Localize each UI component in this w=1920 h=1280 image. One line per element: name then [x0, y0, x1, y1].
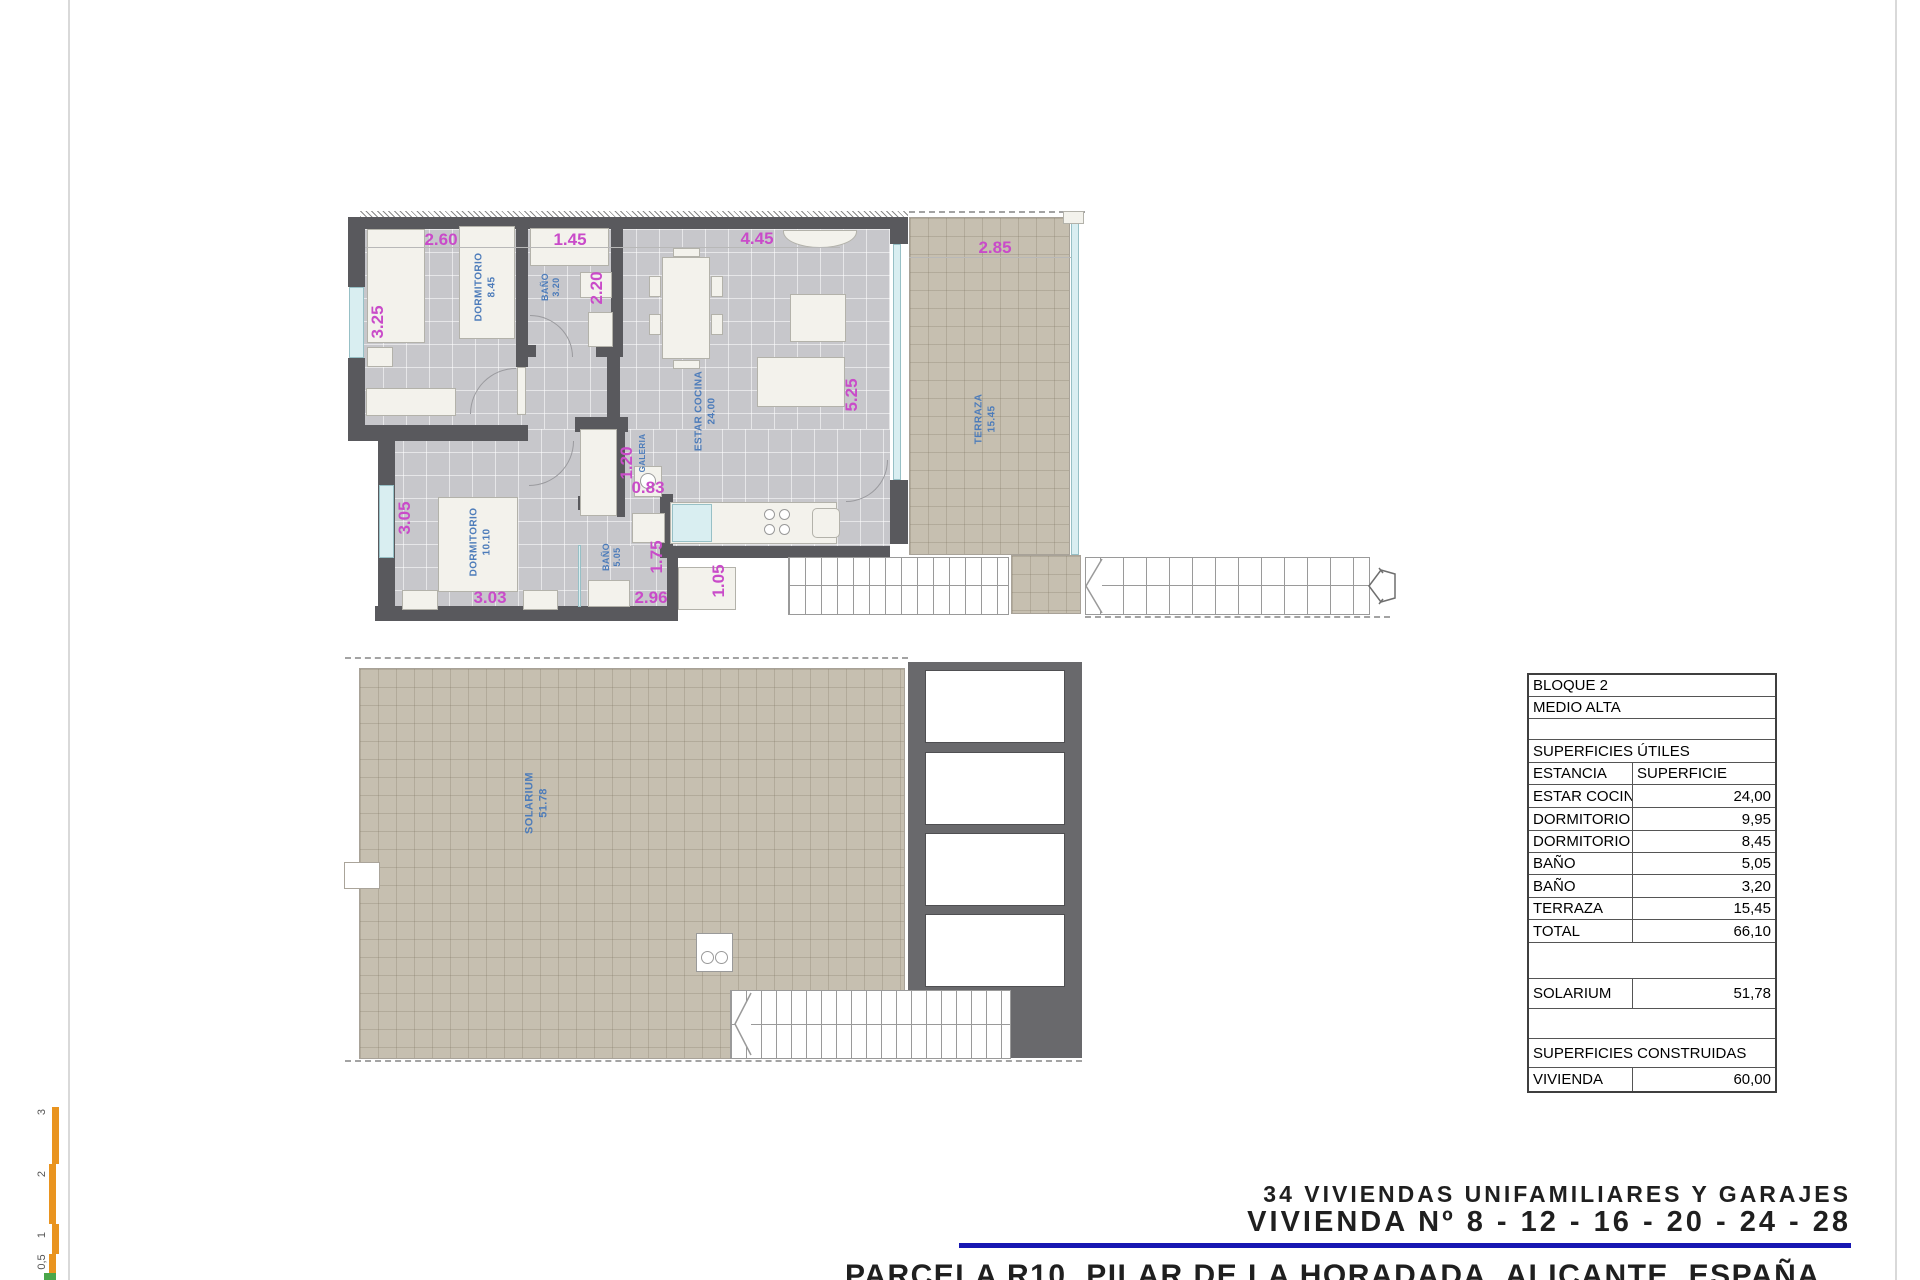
stairwell-opening	[925, 670, 1065, 743]
room-name: DORMITORIO	[474, 253, 487, 322]
dining-chair	[711, 276, 723, 297]
table-row: DORMITORIO9,95	[1529, 808, 1775, 831]
table-cell: SOLARIUM	[1529, 979, 1633, 1008]
dimension-text: 1.75	[647, 540, 667, 573]
furniture-wardrobe	[580, 429, 617, 516]
dining-chair	[711, 314, 723, 335]
table-cell: 24,00	[1633, 788, 1775, 805]
wall	[890, 480, 908, 544]
glazed-facade	[893, 244, 901, 480]
dimension-text: 2.60	[424, 230, 457, 250]
stair-break-mark	[731, 991, 753, 1058]
table-cell: VIVIENDA	[1529, 1068, 1633, 1091]
table-cell: BLOQUE 2	[1529, 677, 1775, 694]
table-row: ESTANCIASUPERFICIE	[1529, 763, 1775, 785]
vent-circle	[715, 951, 728, 964]
room-name: ESTAR COCINA	[694, 371, 707, 451]
bathroom-sink	[632, 513, 665, 543]
kitchen-door	[672, 504, 712, 542]
furniture-dresser	[402, 590, 438, 610]
scale-label: 1	[36, 1232, 48, 1238]
room-label-terraza: TERRAZA 15.45	[974, 394, 999, 445]
room-label-estar-cocina: ESTAR COCINA 24.00	[694, 371, 719, 451]
scale-bar-segment	[49, 1164, 56, 1224]
room-area: 51.78	[537, 788, 551, 818]
table-cell: 15,45	[1633, 900, 1775, 917]
table-cell: 5,05	[1633, 855, 1775, 872]
scale-label: 0,5	[36, 1254, 48, 1269]
dimension-text: 3.25	[368, 305, 388, 338]
dimension-text: 2.20	[587, 271, 607, 304]
room-area: 8.45	[486, 276, 499, 297]
dimension-text: 2.85	[978, 238, 1011, 258]
room-name: BAÑO	[540, 273, 551, 301]
room-label-dormitorio-1: DORMITORIO 8.45	[474, 253, 499, 322]
window	[379, 485, 394, 558]
furniture-desk	[366, 388, 456, 416]
room-label-bano-2: BAÑO 5.05	[601, 543, 624, 571]
room-label-dormitorio-2: DORMITORIO 10.10	[469, 508, 494, 577]
room-area: 24.00	[706, 397, 719, 424]
dimension-text: 1.20	[617, 446, 637, 479]
dimension-text: 3.03	[473, 588, 506, 608]
room-area: 10.10	[481, 528, 494, 555]
toilet	[588, 580, 630, 607]
table-cell: DORMITORIO	[1529, 808, 1633, 830]
dining-chair	[673, 248, 700, 257]
stairs	[788, 557, 1009, 615]
table-row: ESTAR COCINA24,00	[1529, 785, 1775, 808]
wall	[348, 217, 365, 287]
terrace-tiles	[1011, 555, 1081, 614]
table-cell: TERRAZA	[1529, 898, 1633, 919]
apartment-floor-plan: DORMITORIO 8.45 BAÑO 3.20 ESTAR COCINA 2…	[0, 0, 1920, 660]
table-cell: 8,45	[1633, 833, 1775, 850]
stairwell-opening	[925, 833, 1065, 906]
room-name: GALERIA	[638, 434, 648, 473]
table-row	[1529, 943, 1775, 979]
boundary-dashed	[909, 211, 1085, 213]
scale-label: 2	[36, 1171, 48, 1177]
table-row: SUPERFICIES ÚTILES	[1529, 740, 1775, 763]
pillar	[1063, 211, 1084, 224]
dining-chair	[673, 360, 700, 369]
room-label-solarium: SOLARIUM 51.78	[523, 772, 551, 834]
scale-bar-segment	[52, 1224, 59, 1254]
scale-bar-origin	[44, 1273, 56, 1280]
stairwell-opening	[925, 914, 1065, 987]
stairwell-opening	[925, 752, 1065, 825]
title-underline	[959, 1243, 1851, 1248]
dimension-text: 2.96	[634, 588, 667, 608]
room-area: 15.45	[986, 405, 999, 432]
table-cell: 51,78	[1633, 985, 1775, 1002]
solarium-notch	[344, 862, 380, 889]
drawing-sheet: DORMITORIO 8.45 BAÑO 3.20 ESTAR COCINA 2…	[0, 0, 1920, 1280]
scale-bar-segment	[52, 1107, 59, 1164]
room-name: DORMITORIO	[469, 508, 482, 577]
room-name: TERRAZA	[974, 394, 987, 445]
surface-summary-table: BLOQUE 2 MEDIO ALTA SUPERFICIES ÚTILES E…	[1527, 673, 1777, 1093]
wall	[348, 358, 365, 425]
wall	[890, 219, 908, 244]
stair-midline	[788, 585, 1009, 586]
table-cell: SUPERFICIE	[1633, 765, 1775, 782]
furniture-nightstand	[367, 347, 393, 367]
dimension-text: 0.83	[631, 478, 664, 498]
hob-burner	[779, 524, 790, 535]
room-name: BAÑO	[601, 543, 612, 571]
table-cell: ESTAR COCINA	[1529, 785, 1633, 807]
room-label-galeria: GALERIA	[638, 434, 648, 473]
table-row: VIVIENDA60,00	[1529, 1068, 1775, 1091]
table-cell: DORMITORIO	[1529, 831, 1633, 852]
table-cell: ESTANCIA	[1529, 763, 1633, 784]
terrace-glass-rail	[1071, 217, 1079, 555]
table-cell: SUPERFICIES ÚTILES	[1529, 743, 1775, 760]
direction-arrow	[1366, 566, 1400, 606]
room-label-bano-1: BAÑO 3.20	[540, 273, 563, 301]
boundary-dashed	[345, 1060, 1082, 1062]
door-leaf	[517, 367, 526, 415]
dining-table	[662, 257, 710, 359]
dimension-text: 5.25	[842, 378, 862, 411]
furniture-table	[757, 357, 845, 407]
stair-break-mark	[1082, 557, 1104, 615]
dining-chair	[649, 314, 661, 335]
dining-chair	[649, 276, 661, 297]
stair-midline	[1085, 585, 1370, 586]
hob-burner	[764, 509, 775, 520]
table-row: MEDIO ALTA	[1529, 697, 1775, 719]
dimension-text: 1.45	[553, 230, 586, 250]
table-cell: 60,00	[1633, 1071, 1775, 1088]
furniture-dresser	[523, 590, 558, 610]
terrace-tiles	[909, 217, 1070, 555]
table-cell: TOTAL	[1529, 920, 1633, 942]
vent-circle	[701, 951, 714, 964]
dimension-text: 1.05	[709, 564, 729, 597]
toilet	[588, 312, 613, 347]
stair-treads	[1100, 557, 1368, 615]
table-cell: 66,10	[1633, 923, 1775, 940]
table-row: BLOQUE 2	[1529, 675, 1775, 697]
furniture-sofa	[790, 294, 846, 342]
room-area: 3.20	[551, 277, 562, 296]
location-title: PARCELA R10, PILAR DE LA HORADADA, ALICA…	[845, 1259, 1820, 1280]
table-row: TOTAL66,10	[1529, 920, 1775, 943]
table-row: SUPERFICIES CONSTRUIDAS	[1529, 1039, 1775, 1068]
hob-burner	[779, 509, 790, 520]
kitchen-sink	[812, 508, 840, 538]
stair-midline	[730, 1024, 1011, 1025]
table-cell: BAÑO	[1529, 875, 1633, 897]
window	[349, 287, 364, 358]
table-cell: MEDIO ALTA	[1529, 699, 1775, 716]
scale-label: 3	[36, 1109, 48, 1115]
scale-bar: 3 2 1 0,5	[0, 1090, 80, 1280]
table-cell: SUPERFICIES CONSTRUIDAS	[1529, 1045, 1775, 1062]
table-cell: 9,95	[1633, 811, 1775, 828]
hob-burner	[764, 524, 775, 535]
table-cell: 3,20	[1633, 878, 1775, 895]
boundary-dashed	[1085, 616, 1390, 618]
room-name: SOLARIUM	[523, 772, 537, 834]
table-row: TERRAZA15,45	[1529, 898, 1775, 920]
table-row	[1529, 719, 1775, 740]
dimension-text: 4.45	[740, 229, 773, 249]
table-row: DORMITORIO8,45	[1529, 831, 1775, 853]
table-row: BAÑO3,20	[1529, 875, 1775, 898]
table-cell: BAÑO	[1529, 853, 1633, 874]
room-area: 5.05	[612, 547, 623, 566]
project-title: 34 VIVIENDAS UNIFAMILIARES Y GARAJES	[700, 1181, 1851, 1208]
table-row: BAÑO5,05	[1529, 853, 1775, 875]
table-row: SOLARIUM51,78	[1529, 979, 1775, 1009]
wall	[377, 425, 528, 441]
wall	[360, 217, 908, 229]
wall	[667, 558, 678, 621]
shower-screen	[578, 545, 581, 607]
dwelling-numbers-title: VIVIENDA Nº 8 - 12 - 16 - 20 - 24 - 28	[700, 1206, 1851, 1239]
table-row	[1529, 1009, 1775, 1039]
dimension-text: 3.05	[395, 501, 415, 534]
boundary-dashed	[345, 657, 908, 659]
